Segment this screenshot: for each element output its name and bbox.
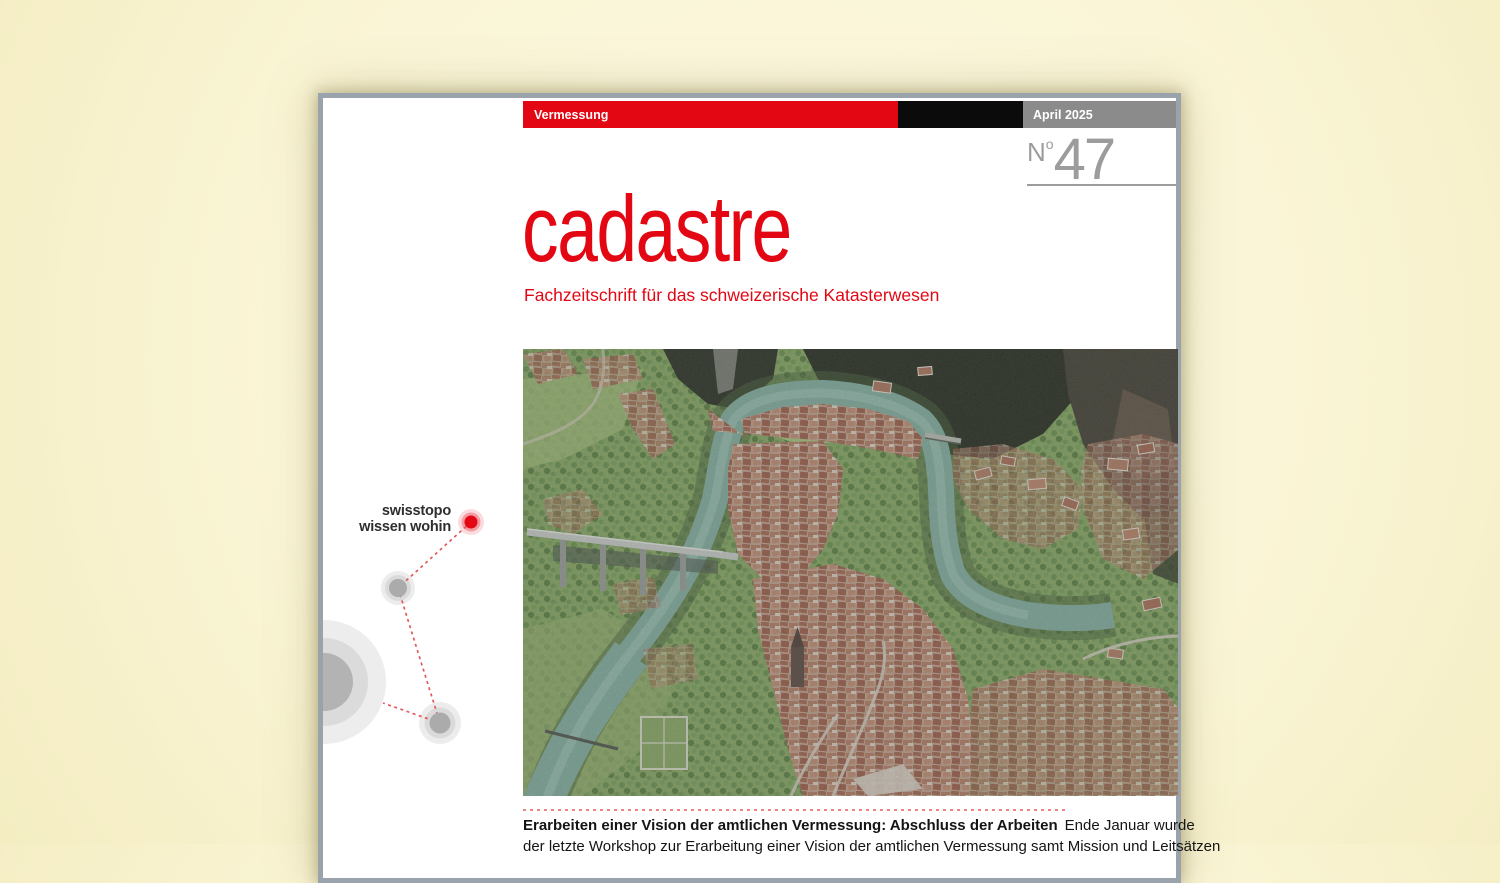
issue-underline (1027, 184, 1176, 186)
teaser-separator (523, 809, 1069, 811)
issue-superscript: o (1046, 136, 1054, 152)
masthead-bar: Vermessung April 2025 (523, 101, 1176, 128)
logo-dashed-links (383, 522, 471, 723)
black-segment (898, 101, 1023, 128)
logo-gray-dot2-icon (430, 713, 451, 734)
cover-photo-graphic (523, 349, 1178, 796)
teaser-line2: der letzte Workshop zur Erarbeitung eine… (523, 836, 1083, 857)
issue-number-block: No47 (1027, 136, 1176, 184)
date-label: April 2025 (1033, 108, 1093, 122)
teaser-text: Erarbeiten einer Vision der amtlichen Ve… (523, 815, 1083, 857)
logo-node-halos (381, 509, 484, 744)
teaser-lead-rest: Ende Januar wurde (1065, 817, 1195, 834)
category-segment: Vermessung (523, 101, 898, 128)
desktop-background: { "document": { "masthead": { "category"… (0, 0, 1500, 844)
logo-gray-dot-icon (389, 579, 407, 597)
logo-red-dot-icon (465, 516, 478, 529)
logo-line2: wissen wohin (358, 519, 451, 535)
page-title: cadastre (522, 182, 791, 276)
issue-prefix: N (1027, 137, 1046, 167)
swisstopo-logo: swisstopo wissen wohin (323, 398, 533, 798)
page-subtitle: Fachzeitschrift für das schweizerische K… (524, 285, 939, 306)
category-label: Vermessung (534, 108, 608, 122)
logo-line1: swisstopo (382, 503, 451, 519)
teaser-line1: Erarbeiten einer Vision der amtlichen Ve… (523, 815, 1083, 836)
issue-number: 47 (1054, 127, 1115, 192)
logo-big-node (323, 620, 386, 744)
date-segment: April 2025 (1023, 101, 1176, 128)
magazine-cover-page: Vermessung April 2025 No47 cadastre Fach… (318, 93, 1181, 883)
cover-photo (523, 349, 1178, 796)
teaser-lead-bold: Erarbeiten einer Vision der amtlichen Ve… (523, 817, 1058, 834)
